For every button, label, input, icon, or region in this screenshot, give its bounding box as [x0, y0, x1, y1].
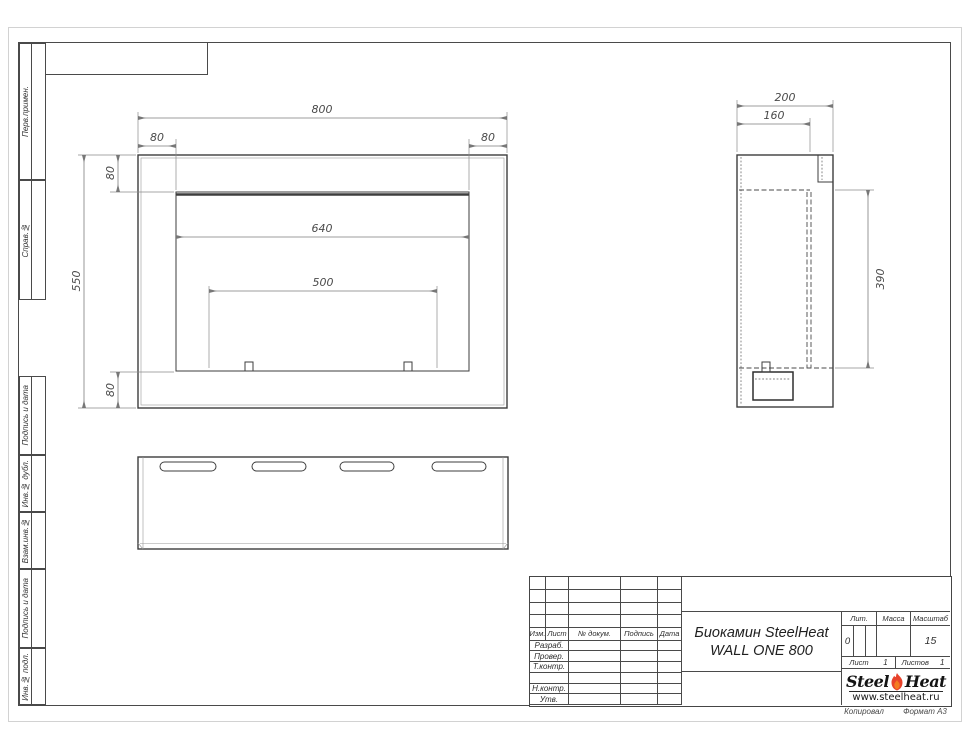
dimension-label: 500	[313, 276, 334, 289]
dimension-label: 200	[775, 91, 796, 104]
row-utv: Утв.	[530, 694, 569, 705]
footer-format: Формат А3	[898, 707, 952, 716]
col-data: Дата	[658, 628, 682, 641]
mass-value-cell	[877, 626, 911, 657]
front-view-dimensions: 800 80 80 80 550 640 500 80	[70, 103, 507, 408]
side-view	[737, 155, 833, 407]
drawing-sheet: Перв.примен. Справ.№ Подпись и дата Инв.…	[0, 0, 970, 749]
row-tkontr: Т.контр.	[530, 662, 569, 673]
logo-wordmark: Steel Heat	[846, 672, 946, 691]
sheet-value: 1	[883, 658, 887, 667]
dimension-label: 800	[312, 103, 333, 116]
vent-slot	[160, 462, 216, 471]
doc-title-cell: Биокамин SteelHeat WALL ONE 800	[682, 612, 842, 672]
dimension-label: 80	[104, 166, 117, 180]
logo-url: www.steelheat.ru	[849, 691, 942, 703]
vent-slot	[340, 462, 394, 471]
lit-value-cell: 0	[842, 626, 854, 657]
col-ndokum: № докум.	[569, 628, 621, 641]
lit-cell-2	[854, 626, 866, 657]
sheets-value: 1	[940, 658, 944, 667]
row-empty	[530, 673, 569, 684]
dimension-label: 550	[70, 271, 83, 292]
sheet-cell: Лист 1	[842, 657, 896, 669]
burner-box	[753, 372, 793, 400]
doc-designation-cell	[682, 577, 950, 612]
dimension-label: 80	[104, 383, 117, 397]
col-podpis: Подпись	[621, 628, 658, 641]
dimension-label: 640	[312, 222, 333, 235]
doc-title-bottom-cell	[682, 672, 842, 705]
title-block: Изм. Лист № докум. Подпись Дата Разраб. …	[529, 576, 952, 707]
col-list: Лист	[546, 628, 569, 641]
vent-slot	[252, 462, 306, 471]
sheets-label: Листов	[902, 658, 929, 667]
bottom-view	[138, 457, 508, 549]
mass-header: Масса	[877, 612, 911, 626]
burner-tab	[762, 362, 770, 372]
scale-header: Масштаб	[911, 612, 950, 626]
dimension-label: 160	[764, 109, 785, 122]
footer-copied: Копировал	[832, 707, 896, 716]
dimension-label: 80	[481, 131, 495, 144]
vent-slot	[432, 462, 486, 471]
doc-title-line1: Биокамин SteelHeat	[694, 625, 828, 641]
sheets-cell: Листов 1	[896, 657, 950, 669]
dimension-label: 80	[150, 131, 164, 144]
col-izm: Изм.	[530, 628, 546, 641]
side-view-dimensions: 200 160 390	[737, 91, 887, 368]
logo-heat-text: Heat	[905, 672, 946, 691]
mount-tab-right	[404, 362, 412, 371]
dimension-label: 390	[874, 269, 887, 290]
mount-tab-left	[245, 362, 253, 371]
scale-value-cell: 15	[911, 626, 950, 657]
lit-header: Лит.	[842, 612, 877, 626]
sheet-label: Лист	[849, 658, 868, 667]
row-razrab: Разраб.	[530, 641, 569, 652]
row-nkontr: Н.контр.	[530, 684, 569, 695]
logo-steel-text: Steel	[846, 672, 889, 691]
doc-title-line2: WALL ONE 800	[710, 643, 813, 659]
lit-cell-3	[866, 626, 877, 657]
flame-icon	[890, 673, 904, 691]
row-prover: Провер.	[530, 651, 569, 662]
side-notch	[818, 155, 833, 182]
company-logo: Steel Heat www.steelheat.ru	[842, 669, 950, 705]
revision-table: Изм. Лист № докум. Подпись Дата Разраб. …	[530, 577, 682, 705]
